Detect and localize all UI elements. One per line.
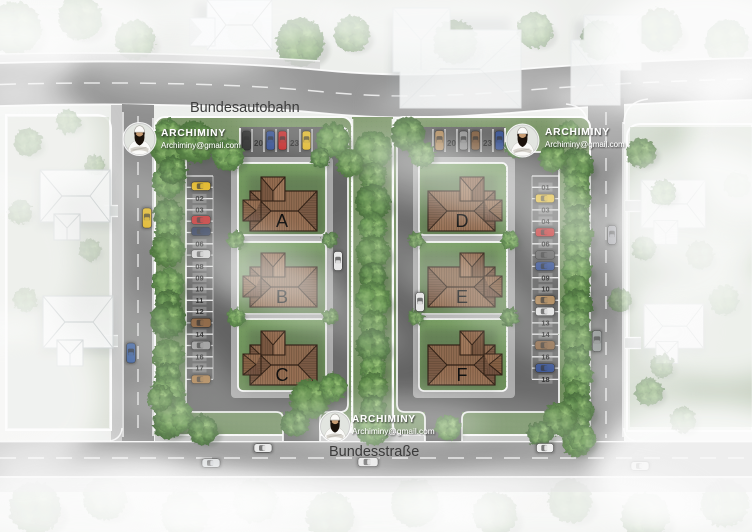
svg-text:Bundesstraße: Bundesstraße [329, 444, 419, 460]
svg-text:ARCHIMINY: ARCHIMINY [352, 414, 416, 425]
svg-text:ARCHIMINY: ARCHIMINY [161, 128, 226, 139]
svg-text:Archiminy@gmail.com: Archiminy@gmail.com [352, 426, 435, 436]
svg-text:ARCHIMINY: ARCHIMINY [545, 127, 610, 138]
svg-text:Bundesautobahn: Bundesautobahn [190, 100, 300, 116]
svg-text:Archiminy@gmail.com: Archiminy@gmail.com [161, 141, 241, 150]
svg-text:Archiminy@gmail.com: Archiminy@gmail.com [545, 140, 625, 149]
